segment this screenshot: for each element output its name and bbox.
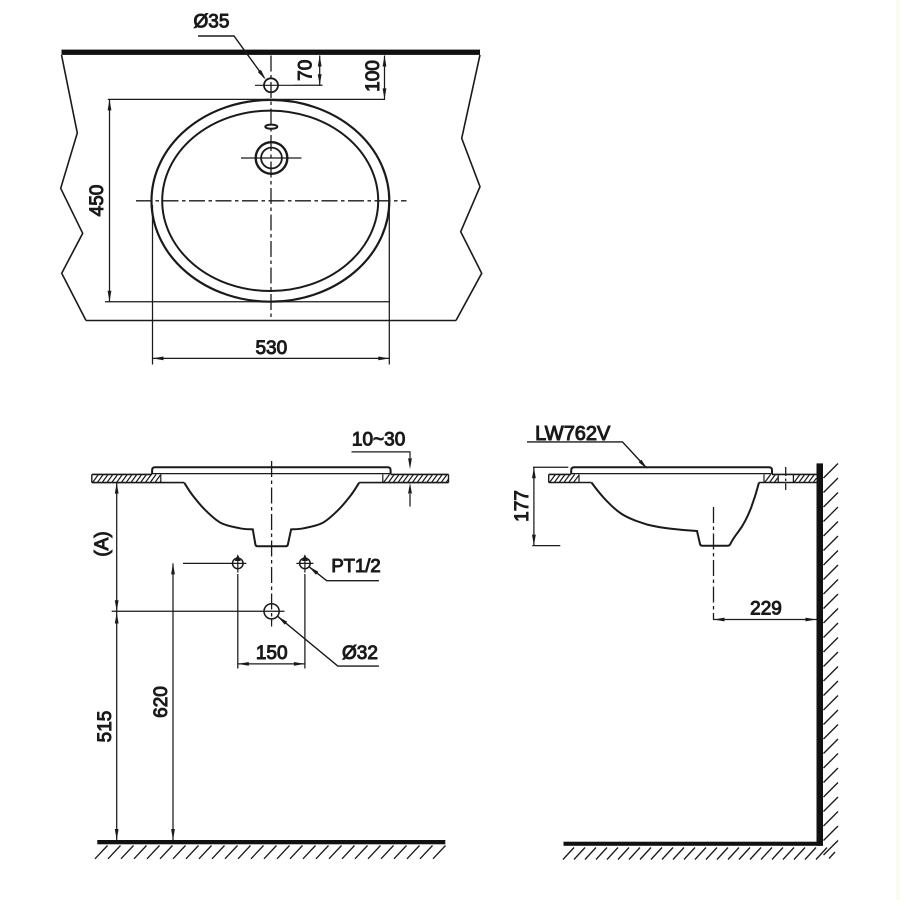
svg-text:(A): (A) xyxy=(92,531,113,556)
svg-text:Ø35: Ø35 xyxy=(194,12,230,33)
svg-text:450: 450 xyxy=(87,185,108,217)
svg-text:10~30: 10~30 xyxy=(352,430,405,451)
svg-text:150: 150 xyxy=(256,643,288,664)
svg-text:515: 515 xyxy=(95,711,116,743)
svg-text:620: 620 xyxy=(151,686,172,718)
svg-text:177: 177 xyxy=(512,490,533,522)
svg-text:229: 229 xyxy=(750,599,782,620)
svg-text:PT1/2: PT1/2 xyxy=(331,555,380,576)
svg-text:530: 530 xyxy=(255,338,287,359)
svg-text:70: 70 xyxy=(296,60,317,81)
svg-text:Ø32: Ø32 xyxy=(342,643,378,664)
svg-text:100: 100 xyxy=(363,60,384,92)
